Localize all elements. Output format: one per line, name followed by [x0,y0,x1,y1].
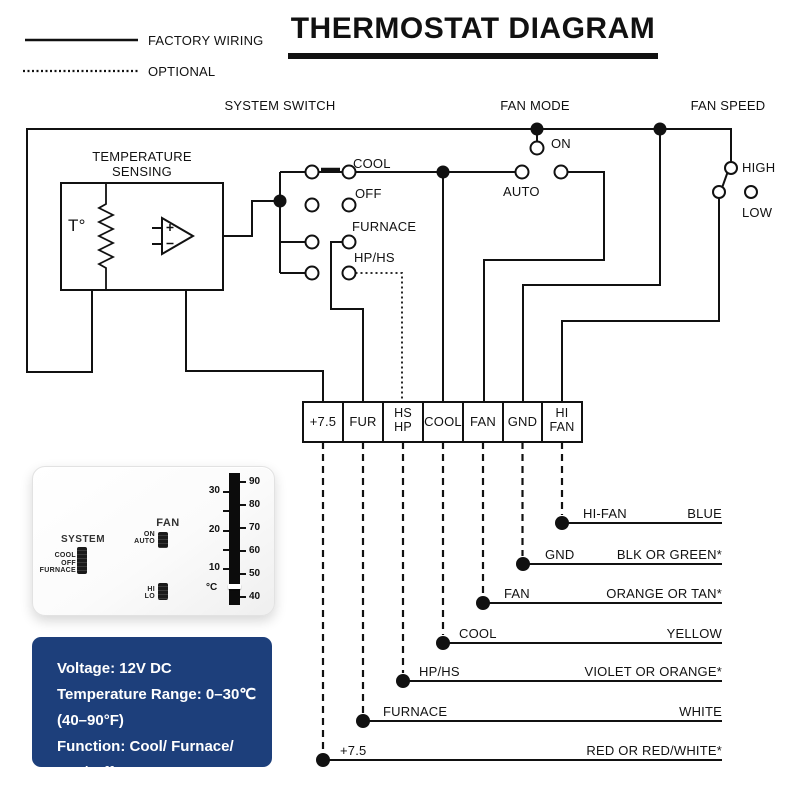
dot-hphs [396,674,410,688]
scale-tick [240,550,246,552]
scale-fahrenheit-50: 50 [249,568,260,579]
gnd-terminal-wire [523,129,660,402]
scale-tick [223,510,229,512]
terminal-fur: FUR [343,414,383,429]
scale-celsius-10: 10 [200,562,220,573]
fan-speed-high-label: HIGH [742,160,775,175]
temperature-sensing-line2: SENSING [82,165,202,180]
fan-auto-contact-left [516,166,529,179]
page-title: THERMOSTAT DIAGRAM [273,12,673,46]
fan-speed-low-contact [745,186,757,198]
legend-optional-label: OPTIONAL [148,64,215,79]
device-fan-slider [158,532,168,548]
junction-fan-on [531,123,544,136]
wire-row-color: ORANGE OR TAN* [422,586,722,601]
scale-fahrenheit-70: 70 [249,522,260,533]
scale-tick [240,504,246,506]
sensing-box [61,183,223,290]
junction-dots [274,123,667,208]
spec-info-box: Voltage: 12V DC Temperature Range: 0–30℃… [32,637,272,767]
fan-speed-high-contact [725,162,737,174]
terminal-gnd: GND [503,414,542,429]
wire-row-terminal: +7.5 [340,743,366,758]
device-speed-option-lo: LO [111,593,155,600]
fan-auto-contact-right [555,166,568,179]
terminal-cool: COOL [423,414,463,429]
plus75-wire [186,290,323,402]
thermistor-label: T° [68,216,86,236]
section-fan-mode: FAN MODE [470,98,600,113]
device-system-option-off: OFF [31,560,76,567]
scale-tick [240,596,246,598]
off-contact-left [306,199,319,212]
section-fan-speed: FAN SPEED [663,98,793,113]
device-fan-option-auto: AUTO [111,538,155,545]
device-fan-label: FAN [146,517,190,529]
scale-unit-celsius: °C [206,582,217,593]
fan-speed-low-label: LOW [742,205,772,220]
scale-tick [223,568,229,570]
terminal-plus75: +7.5 [303,414,343,429]
switch-position-off: OFF [355,186,382,201]
scale-tick [223,530,229,532]
device-fan-option-on: ON [111,531,155,538]
device-system-slider [77,547,87,574]
fan-mode-auto-label: AUTO [503,184,540,199]
fan-terminal-wire [484,172,604,402]
title-underline [288,53,658,59]
scale-tick [223,549,229,551]
terminal-hshp: HS HP [383,407,423,434]
junction-opamp [274,195,287,208]
spec-temp-range-f: (40–90°F) [57,708,272,734]
furnace-contact-left [306,236,319,249]
switch-position-hphs: HP/HS [354,250,395,265]
terminal-hifan: HI FAN [542,407,582,434]
scale-fahrenheit-80: 80 [249,499,260,510]
scale-celsius-30: 30 [200,485,220,496]
fan-on-contact [531,142,544,155]
wire-row-color: VIOLET OR ORANGE* [432,664,722,679]
device-speed-option-hi: HI [111,586,155,593]
wire-row-color: BLK OR GREEN* [422,547,722,562]
off-contact-right [343,199,356,212]
scale-celsius-20: 20 [200,524,220,535]
hi-fan-terminal-wire [562,198,719,402]
fan-speed-blade [723,173,728,187]
wire-row-color: YELLOW [422,626,722,641]
scale-tick [223,491,229,493]
junction-cool [437,166,450,179]
terminal-hshp-line2: HP [383,421,423,435]
scale-fahrenheit-90: 90 [249,476,260,487]
hphs-contact-left [306,267,319,280]
temperature-sensing-block [61,183,223,290]
hphs-contact-right [343,267,356,280]
switch-position-furnace: FURNACE [352,219,416,234]
wire-row-color: BLUE [422,506,722,521]
wire-row-color: WHITE [422,704,722,719]
dot-plus75 [316,753,330,767]
terminal-hifan-line1: HI [542,407,582,421]
temperature-sensing-line1: TEMPERATURE [82,150,202,165]
section-system-switch: SYSTEM SWITCH [205,98,355,113]
scale-fahrenheit-40: 40 [249,591,260,602]
scale-tick [240,527,246,529]
fan-mode-on-label: ON [551,136,571,151]
system-switch-bus [280,172,305,273]
scale-tick [240,573,246,575]
spec-voltage: Voltage: 12V DC [57,656,272,682]
furnace-contact-right [343,236,356,249]
spec-function: Function: Cool/ Furnace/ [57,734,272,760]
dot-furnace [356,714,370,728]
terminal-fan: FAN [463,414,503,429]
device-system-option-furnace: FURNACE [31,567,76,574]
temperature-sensing-label: TEMPERATURE SENSING [82,150,202,179]
junction-gnd [654,123,667,136]
device-speed-slider [158,583,168,600]
switch-position-cool: COOL [353,156,391,171]
device-system-label: SYSTEM [51,534,115,545]
scale-tick [240,481,246,483]
spec-temp-range: Temperature Range: 0–30℃ [57,682,272,708]
spec-function-2: Fan/ Off [57,760,272,786]
scale-set-point-indicator [228,584,241,589]
device-system-option-cool: COOL [31,552,76,559]
wire-row-color: RED OR RED/WHITE* [422,743,722,758]
terminal-hshp-line1: HS [383,407,423,421]
legend-factory-label: FACTORY WIRING [148,33,263,48]
cool-contact-left [306,166,319,179]
scale-fahrenheit-60: 60 [249,545,260,556]
terminal-hifan-line2: FAN [542,421,582,435]
fan-speed-common-contact [713,186,725,198]
